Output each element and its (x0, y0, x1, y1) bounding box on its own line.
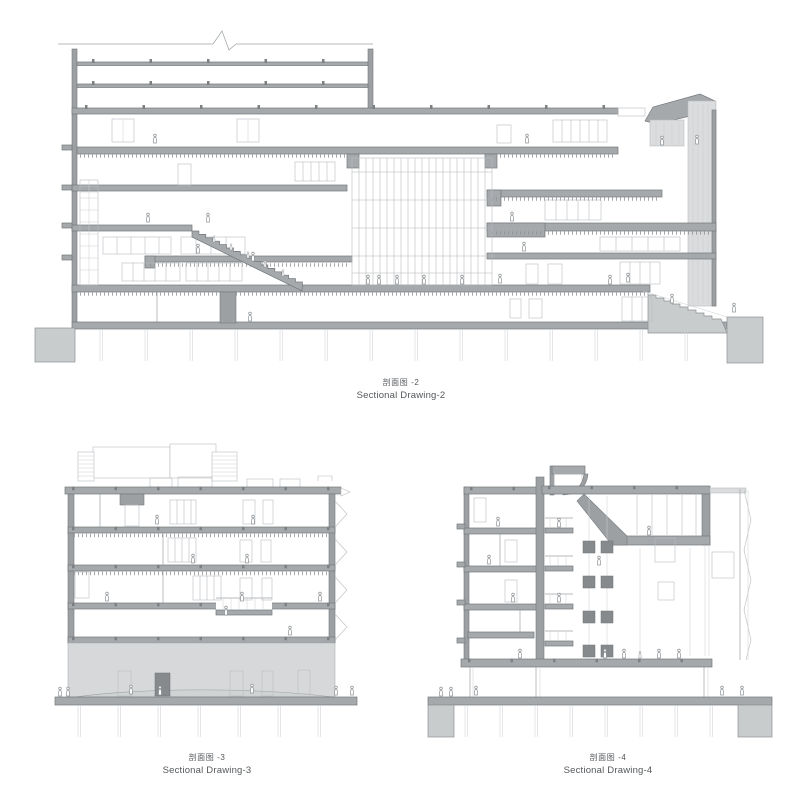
caption-zh: 剖面图 -2 (291, 377, 511, 388)
ground-floor-slab (72, 285, 650, 292)
cantilever-roof (542, 486, 710, 494)
roof-edge-marker (341, 488, 350, 496)
elevated-floor-slab (461, 659, 712, 667)
core-landings (545, 518, 573, 646)
entrance-door (155, 673, 170, 696)
caption-en: Sectional Drawing-2 (291, 390, 511, 401)
caption-zh: 剖面图 -4 (498, 752, 718, 763)
caption-zh: 剖面图 -3 (97, 752, 317, 763)
caption-en: Sectional Drawing-3 (97, 765, 317, 776)
roof-slab (72, 108, 618, 114)
break-line-symbol (213, 31, 236, 50)
caption-sectional-drawing-3: 剖面图 -3 Sectional Drawing-3 (97, 752, 317, 776)
ground-storey-elevation (68, 643, 335, 697)
drawing-sheet: 剖面图 -2 Sectional Drawing-2 剖面图 -3 Sectio… (0, 0, 800, 800)
foundation-piles (465, 706, 713, 737)
sectional-drawing-4-figure (428, 466, 772, 737)
caption-en: Sectional Drawing-4 (498, 765, 718, 776)
sectional-drawing-2-figure (35, 31, 763, 363)
basement-slab (72, 322, 727, 329)
sectional-drawing-3-figure (55, 444, 357, 737)
core-wall (536, 477, 544, 663)
rooftop-equipment (78, 444, 332, 487)
atrium-curtain-wall (352, 158, 492, 285)
caption-sectional-drawing-4: 剖面图 -4 Sectional Drawing-4 (498, 752, 718, 776)
foundation-piles (78, 706, 321, 737)
cantilever-soffit (577, 494, 627, 545)
caption-sectional-drawing-2: 剖面图 -2 Sectional Drawing-2 (291, 377, 511, 401)
foundation-piles (100, 330, 688, 361)
